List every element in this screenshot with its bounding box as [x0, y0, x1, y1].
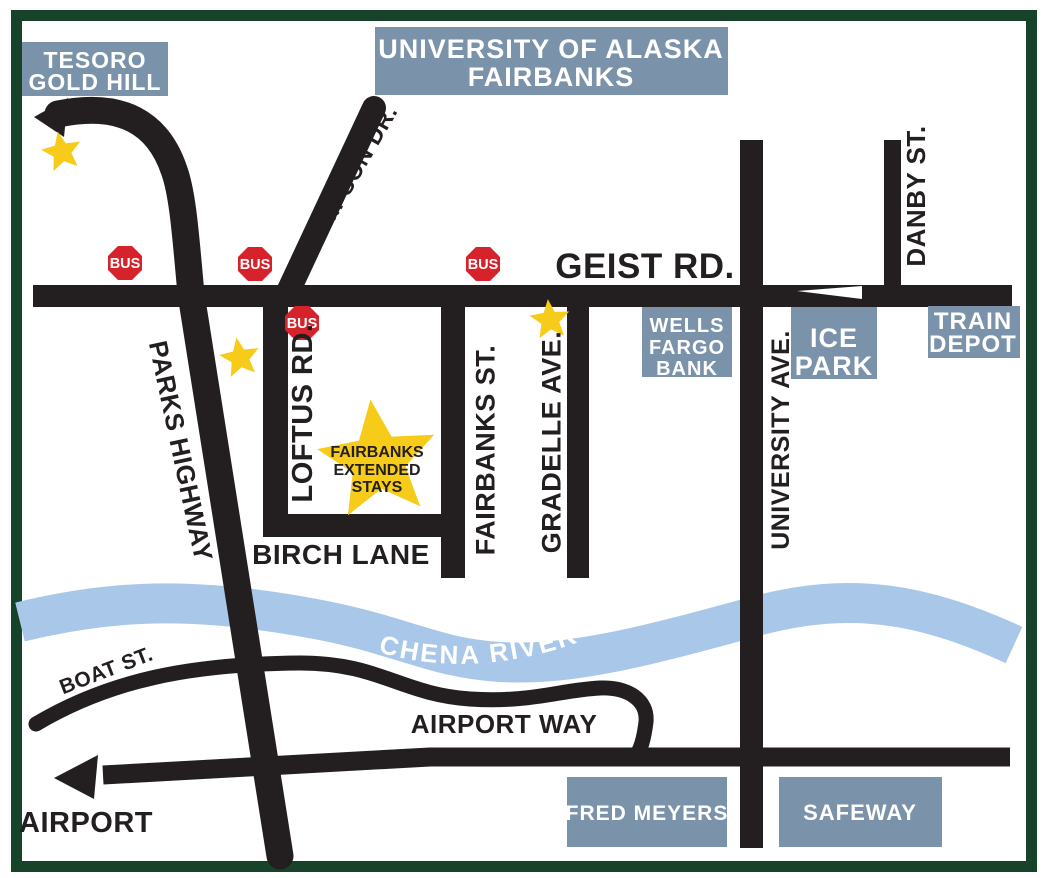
star-label-line3: STAYS — [352, 479, 403, 496]
ice-park-label-line1: ICE — [810, 323, 858, 353]
road-label-gradelle-ave: GRADELLE AVE. — [536, 331, 566, 554]
star-label-line1: FAIRBANKS — [330, 444, 424, 461]
road-geist-rd — [33, 285, 1012, 307]
landmark-ice-park: ICE PARK — [791, 307, 877, 381]
landmark-fred-meyers: FRED MEYERS — [566, 777, 729, 847]
road-label-fairbanks-st: FAIRBANKS ST. — [470, 345, 500, 556]
landmark-train-depot: TRAIN DEPOT — [928, 306, 1020, 358]
map-page: CHENA RIVER FAIRBANKS — [0, 0, 1044, 878]
tesoro-label-line2: GOLD HILL — [29, 69, 162, 95]
safeway-label: SAFEWAY — [803, 800, 917, 825]
wells-fargo-label-line3: BANK — [656, 358, 718, 380]
university-label-line1: UNIVERSITY OF ALASKA — [378, 34, 724, 64]
road-fairbanks-st — [441, 300, 465, 578]
road-gradelle-ave — [567, 300, 589, 578]
landmark-safeway: SAFEWAY — [779, 777, 942, 847]
road-label-geist-rd: GEIST RD. — [555, 247, 735, 286]
bus-stop-2: BUS — [238, 247, 272, 281]
landmark-wells-fargo-bank: WELLS FARGO BANK — [642, 307, 732, 380]
ice-park-label-line2: PARK — [795, 351, 874, 381]
destination-label-airport: AIRPORT — [19, 807, 153, 839]
map-canvas: CHENA RIVER FAIRBANKS — [0, 0, 1044, 878]
star-label-line2: EXTENDED — [333, 462, 420, 479]
wells-fargo-label-line1: WELLS — [650, 315, 725, 337]
bus-stop-label: BUS — [110, 256, 141, 272]
road-label-airport-way: AIRPORT WAY — [411, 709, 598, 739]
road-label-danby-st: DANBY ST. — [901, 125, 931, 266]
road-danby-st — [884, 140, 901, 300]
bus-stop-1: BUS — [108, 246, 142, 280]
road-label-university-ave: UNIVERSITY AVE. — [767, 330, 795, 550]
train-depot-label-line2: DEPOT — [929, 331, 1017, 358]
road-label-birch-lane: BIRCH LANE — [252, 539, 430, 570]
bus-stop-3: BUS — [466, 247, 500, 281]
bus-stop-label: BUS — [240, 257, 271, 273]
fred-meyers-label: FRED MEYERS — [566, 802, 729, 825]
university-label-line2: FAIRBANKS — [468, 62, 635, 92]
road-university-ave — [740, 140, 763, 848]
landmark-tesoro-gold-hill: TESORO GOLD HILL — [22, 42, 168, 96]
wells-fargo-label-line2: FARGO — [649, 337, 725, 359]
bus-stop-label: BUS — [468, 257, 499, 273]
landmark-university-of-alaska-fairbanks: UNIVERSITY OF ALASKA FAIRBANKS — [375, 27, 728, 95]
road-loftus-rd — [263, 300, 288, 537]
road-birch-lane — [263, 514, 465, 537]
road-label-loftus-rd: LOFTUS RD. — [287, 324, 319, 503]
